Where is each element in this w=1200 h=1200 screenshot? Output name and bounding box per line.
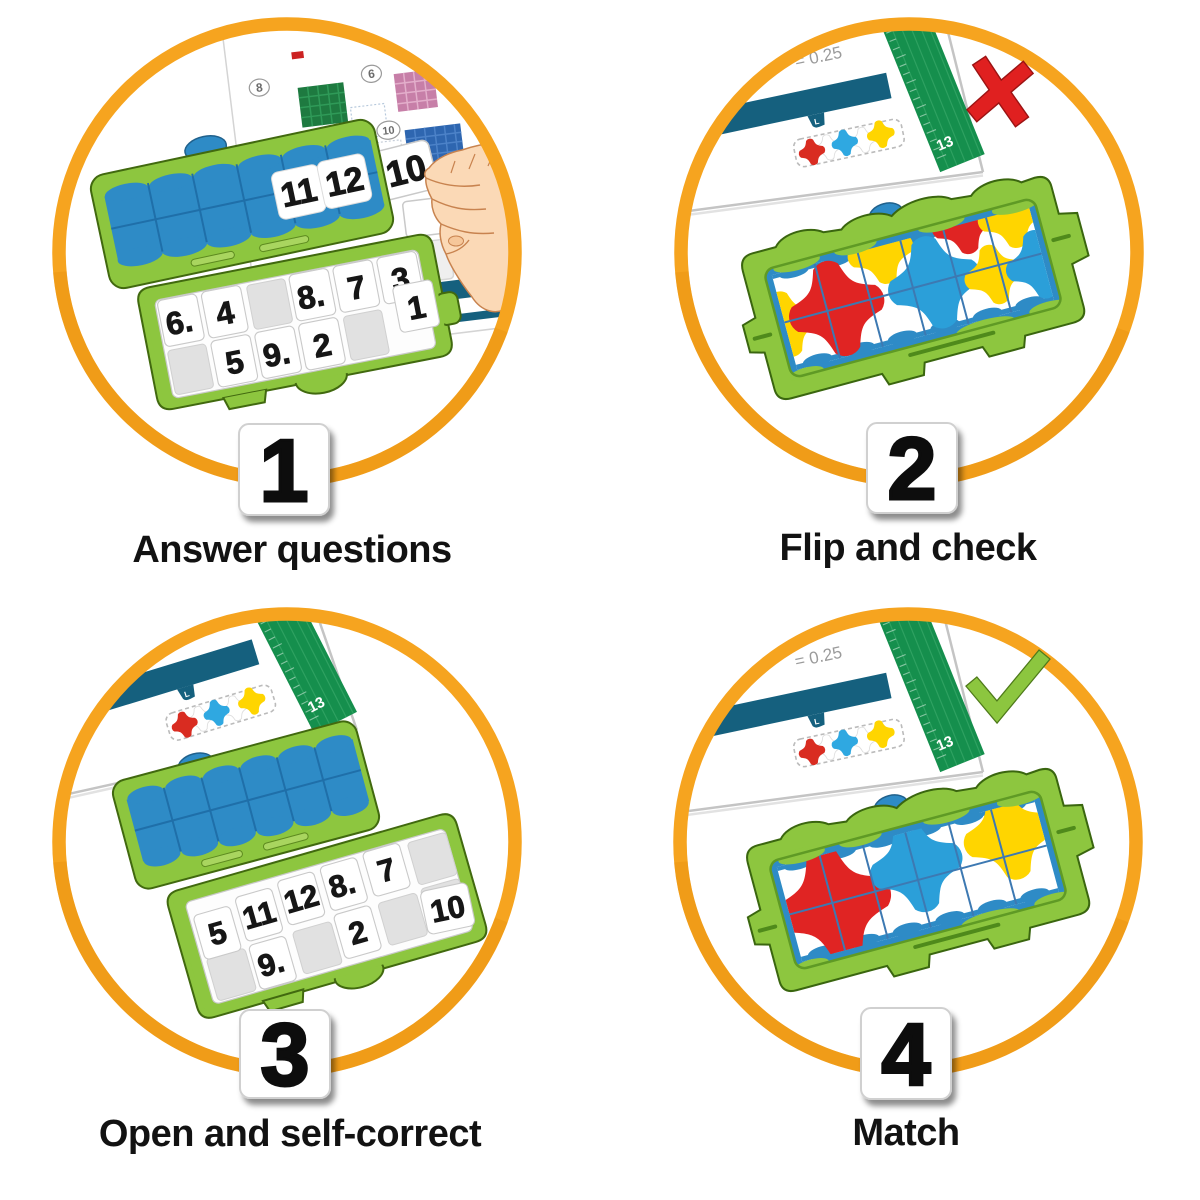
svg-text:10: 10: [382, 124, 396, 137]
svg-text:12: 12: [322, 160, 367, 205]
svg-text:1: 1: [260, 421, 309, 520]
svg-text:Match: Match: [852, 1112, 959, 1154]
svg-text:Answer questions: Answer questions: [132, 529, 451, 571]
svg-text:3: 3: [261, 1005, 310, 1104]
svg-text:2: 2: [888, 419, 937, 518]
svg-text:4: 4: [882, 1005, 931, 1104]
svg-text:Flip and check: Flip and check: [780, 527, 1038, 569]
svg-text:10: 10: [427, 888, 468, 929]
svg-text:Open and self-correct: Open and self-correct: [99, 1113, 482, 1155]
